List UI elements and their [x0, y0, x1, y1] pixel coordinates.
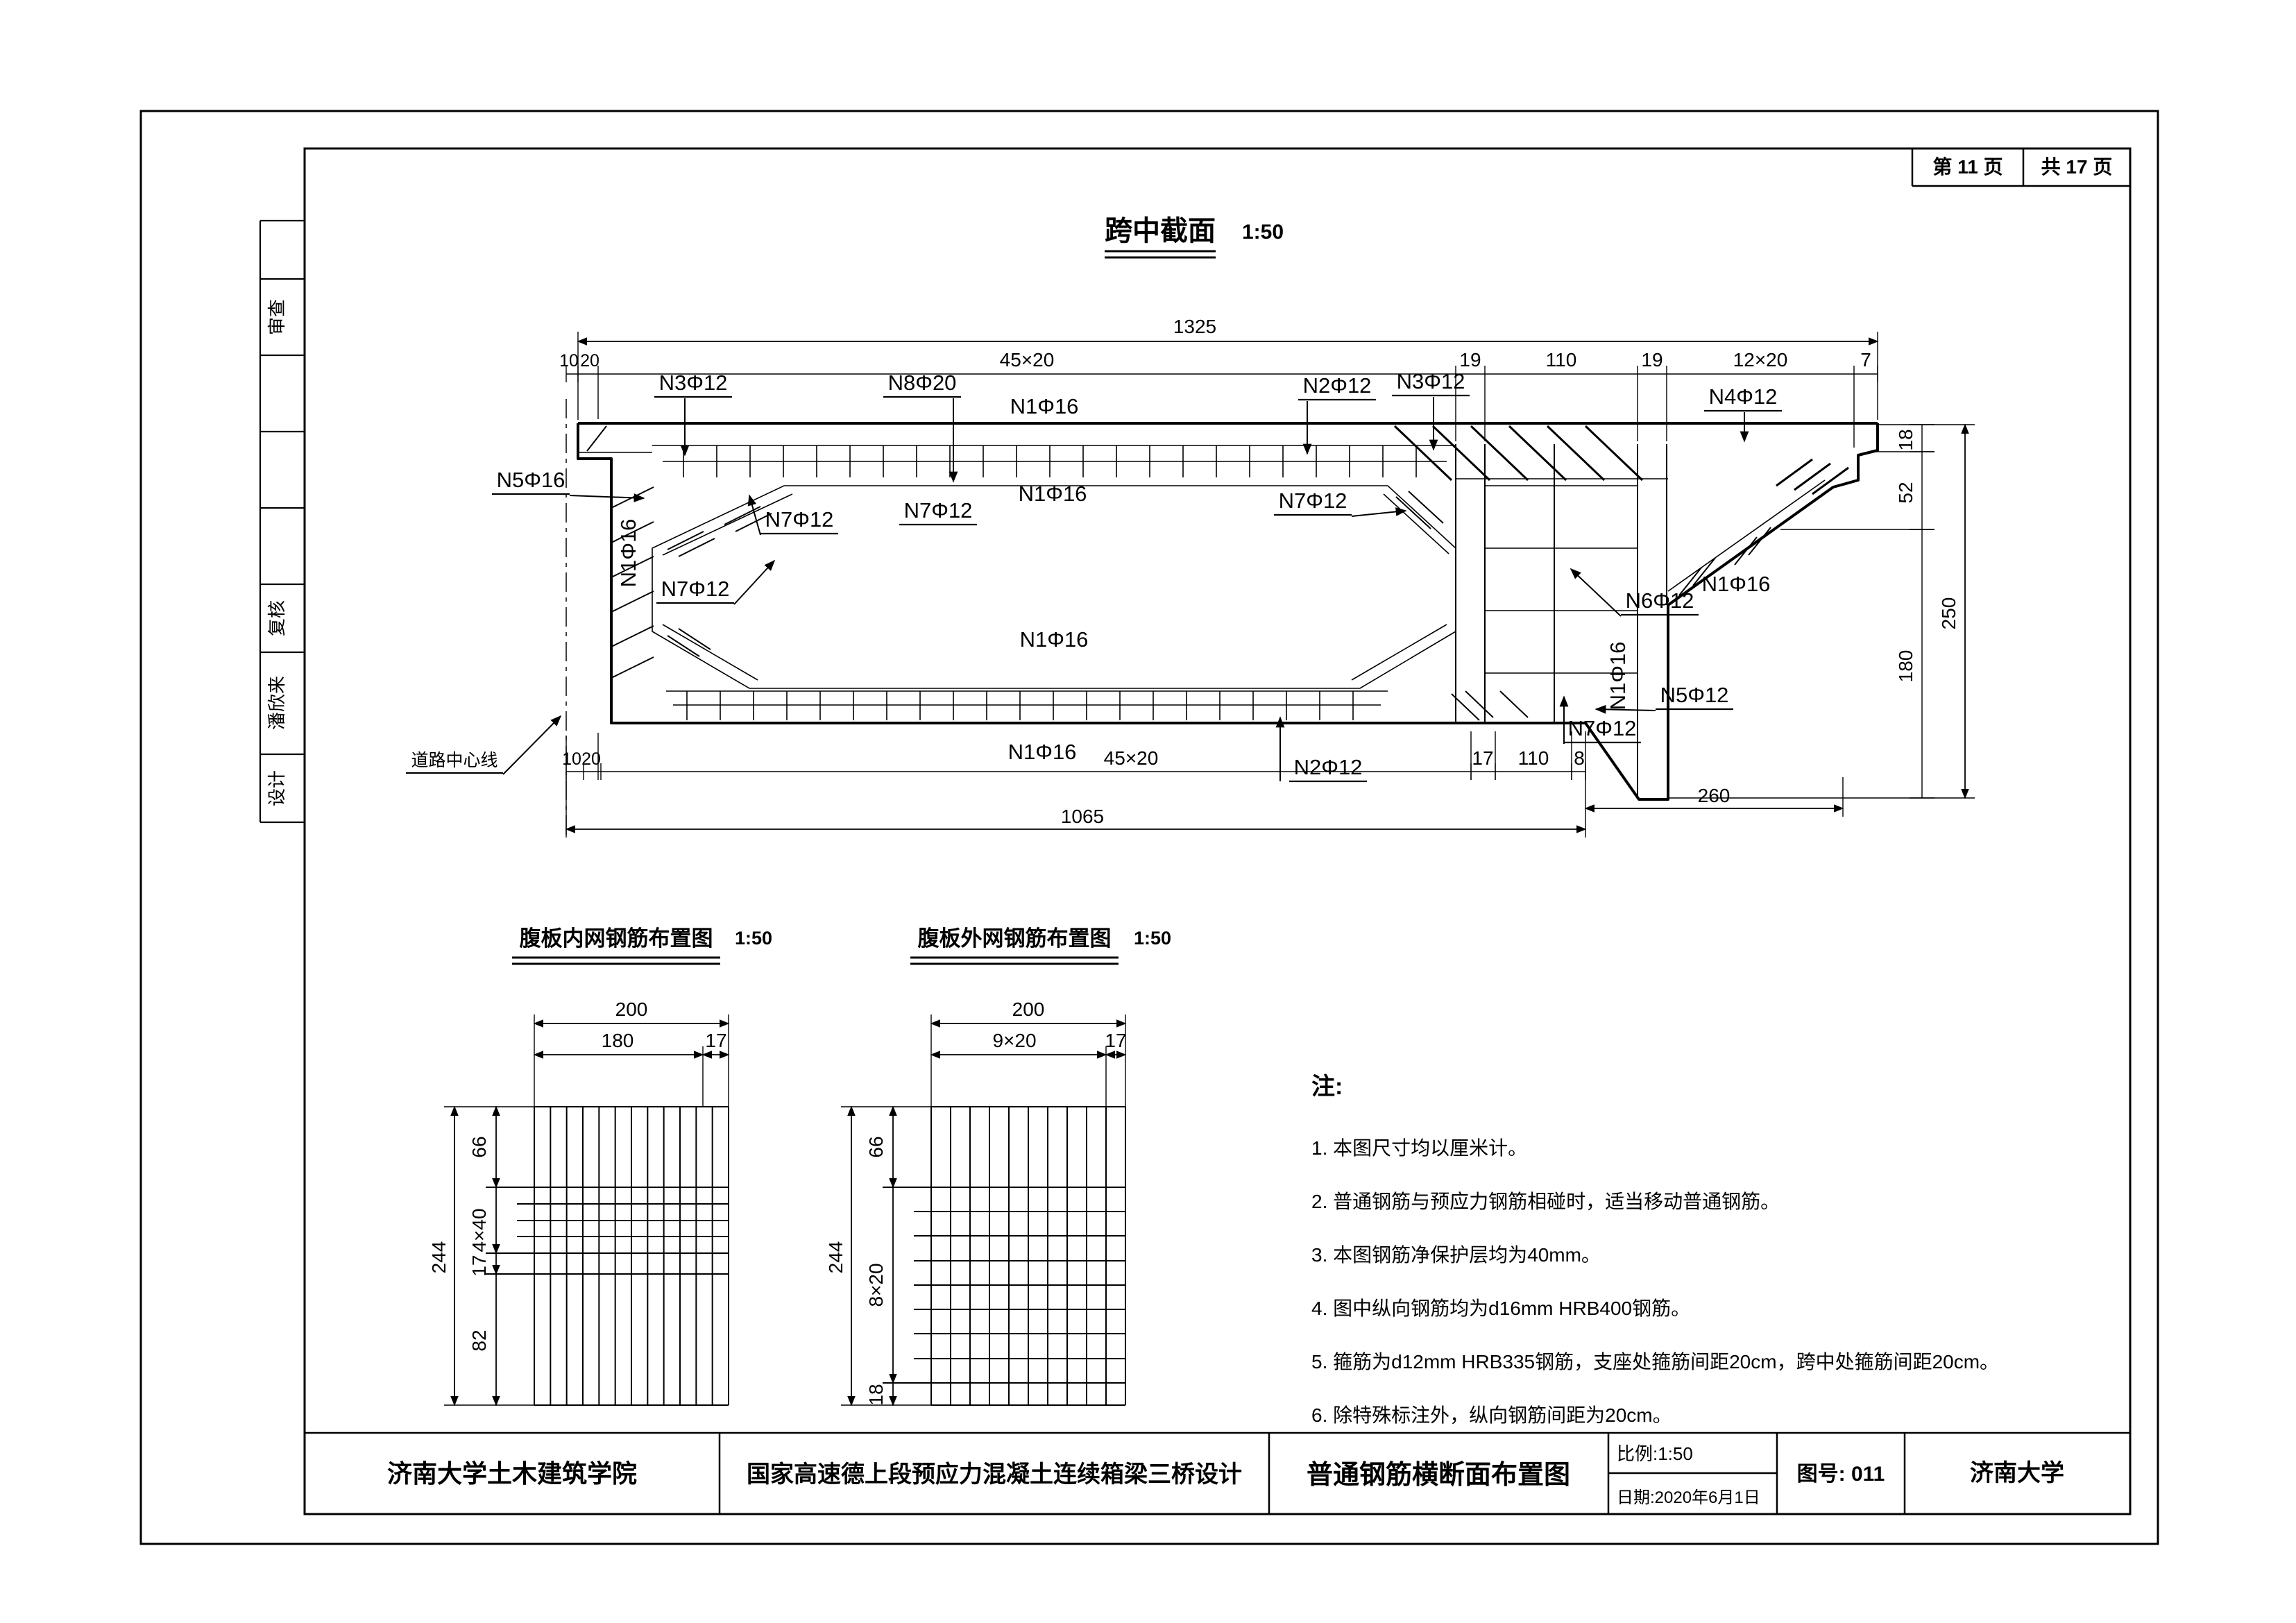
drawing-text: 18: [865, 1384, 887, 1405]
drawing-text: 10: [562, 749, 581, 769]
drawing-text: 19: [1641, 349, 1663, 371]
drawing-text: N3Φ12: [659, 371, 728, 395]
drawing-text: 17: [705, 1030, 726, 1051]
drawing-text: 1:50: [1134, 928, 1171, 949]
note-item: 2. 普通钢筋与预应力钢筋相碰时，适当移动普通钢筋。: [1311, 1187, 2158, 1214]
drawing-text: 1325: [1173, 316, 1216, 337]
drawing-text: 9×20: [992, 1030, 1036, 1051]
drawing-text: 200: [1012, 999, 1045, 1020]
drawing-text: 潘欣来: [266, 676, 287, 730]
support-web-lines: [1456, 444, 1667, 798]
drawing-text: 7: [1860, 349, 1871, 371]
drawing-text: 4×40: [468, 1208, 490, 1252]
drawing-text: 1065: [1061, 806, 1104, 827]
drawing-text: 10: [559, 351, 579, 371]
drawing-text: N5Φ16: [497, 468, 566, 492]
drawing-text: 20: [580, 351, 599, 371]
note-item: 5. 箍筋为d12mm HRB335钢筋，支座处箍筋间距20cm，跨中处箍筋间距…: [1311, 1347, 2158, 1375]
drawing-text: 设计: [266, 770, 287, 806]
drawing-text: N1Φ16: [1008, 740, 1077, 764]
drawing-text: 1:50: [735, 928, 772, 949]
drawing-text: 18: [1895, 429, 1916, 450]
drawing-text: 跨中截面: [1105, 216, 1216, 246]
drawing-text: N1Φ16: [1606, 642, 1630, 711]
drawing-text: 12×20: [1733, 349, 1788, 371]
drawing-text: 普通钢筋横断面布置图: [1307, 1461, 1570, 1490]
drawing-text: 1:50: [1242, 221, 1284, 244]
drawing-text: N1Φ16: [1020, 627, 1089, 652]
drawing-text: N7Φ12: [1279, 488, 1347, 513]
drawing-text: 250: [1938, 597, 1959, 630]
drawing-text: 66: [865, 1136, 887, 1157]
drawing-text: 8: [1574, 747, 1585, 769]
drawing-text: 图号: 011: [1797, 1463, 1885, 1486]
drawing-text: 45×20: [1104, 747, 1159, 769]
drawing-text: N8Φ20: [888, 371, 957, 395]
drawing-text: N1Φ16: [1702, 572, 1771, 596]
drawing-text: 20: [581, 749, 601, 769]
note-item: 4. 图中纵向钢筋均为d16mm HRB400钢筋。: [1311, 1293, 2158, 1321]
drawing-text: N7Φ12: [1568, 716, 1637, 740]
drawing-text: 82: [468, 1329, 490, 1351]
drawing-text: 180: [602, 1030, 634, 1051]
drawing-text: 17: [1472, 747, 1493, 769]
drawing-text: 腹板外网钢筋布置图: [918, 926, 1112, 951]
drawing-text: 道路中心线: [411, 751, 498, 770]
notes-list: 1. 本图尺寸均以厘米计。2. 普通钢筋与预应力钢筋相碰时，适当移动普通钢筋。3…: [1311, 1133, 2158, 1428]
drawing-text: 共 17 页: [2041, 156, 2113, 178]
drawing-sheet: 跨中截面1:50腹板内网钢筋布置图1:50腹板外网钢筋布置图1:50道路中心线N…: [0, 0, 2296, 1623]
drawing-text: 52: [1895, 482, 1916, 503]
drawing-text: 第 11 页: [1932, 155, 2002, 178]
drawing-text: N7Φ12: [661, 577, 730, 601]
drawing-text: 国家高速德上段预应力混凝土连续箱梁三桥设计: [747, 1461, 1242, 1488]
drawing-text: 审查: [266, 299, 287, 335]
drawing-text: N1Φ16: [1010, 394, 1079, 418]
drawing-text: N7Φ12: [904, 498, 973, 522]
web-inner-grid: [486, 1107, 729, 1405]
drawing-text: 济南大学土木建筑学院: [387, 1459, 637, 1488]
drawing-text: 260: [1698, 785, 1730, 806]
drawing-text: N1Φ16: [1019, 482, 1087, 506]
note-item: 6. 除特殊标注外，纵向钢筋间距为20cm。: [1311, 1400, 2158, 1428]
drawing-text: N4Φ12: [1709, 384, 1778, 409]
drawing-text: N5Φ12: [1660, 683, 1729, 707]
web-outer-grid: [883, 1107, 1125, 1405]
drawing-text: N3Φ12: [1397, 369, 1465, 393]
drawing-text: 244: [825, 1241, 847, 1274]
drawing-text: 66: [468, 1136, 490, 1157]
drawing-text: 110: [1518, 747, 1549, 769]
notes-heading: 注:: [1311, 1067, 2158, 1101]
drawing-text: 8×20: [865, 1263, 887, 1307]
note-item: 3. 本图钢筋净保护层均为40mm。: [1311, 1240, 2158, 1268]
drawing-text: 17: [1105, 1030, 1126, 1051]
drawing-text: 17: [468, 1255, 490, 1276]
drawing-text: 180: [1895, 650, 1916, 683]
drawing-text: 110: [1546, 349, 1577, 371]
drawing-text: 19: [1459, 349, 1481, 371]
drawing-text: 日期:2020年6月1日: [1617, 1488, 1760, 1507]
drawing-text: 200: [615, 999, 648, 1020]
drawing-text: N1Φ16: [616, 519, 640, 588]
drawing-text: 腹板内网钢筋布置图: [520, 926, 713, 951]
drawing-text: 复核: [266, 600, 287, 636]
heading-underlines: [512, 251, 1216, 964]
drawing-text: 244: [428, 1241, 450, 1274]
note-item: 1. 本图尺寸均以厘米计。: [1311, 1133, 2158, 1161]
drawing-text: N2Φ12: [1303, 373, 1372, 398]
drawing-text: N7Φ12: [765, 507, 834, 532]
notes: 注: 1. 本图尺寸均以厘米计。2. 普通钢筋与预应力钢筋相碰时，适当移动普通钢…: [1311, 1067, 2158, 1454]
drawing-text: N2Φ12: [1294, 755, 1363, 779]
drawing-text: 济南大学: [1970, 1459, 2064, 1486]
prestress-duct-hatch: [1395, 426, 1848, 494]
drawing-text: 45×20: [1000, 349, 1055, 371]
drawing-text: N6Φ12: [1626, 588, 1694, 613]
